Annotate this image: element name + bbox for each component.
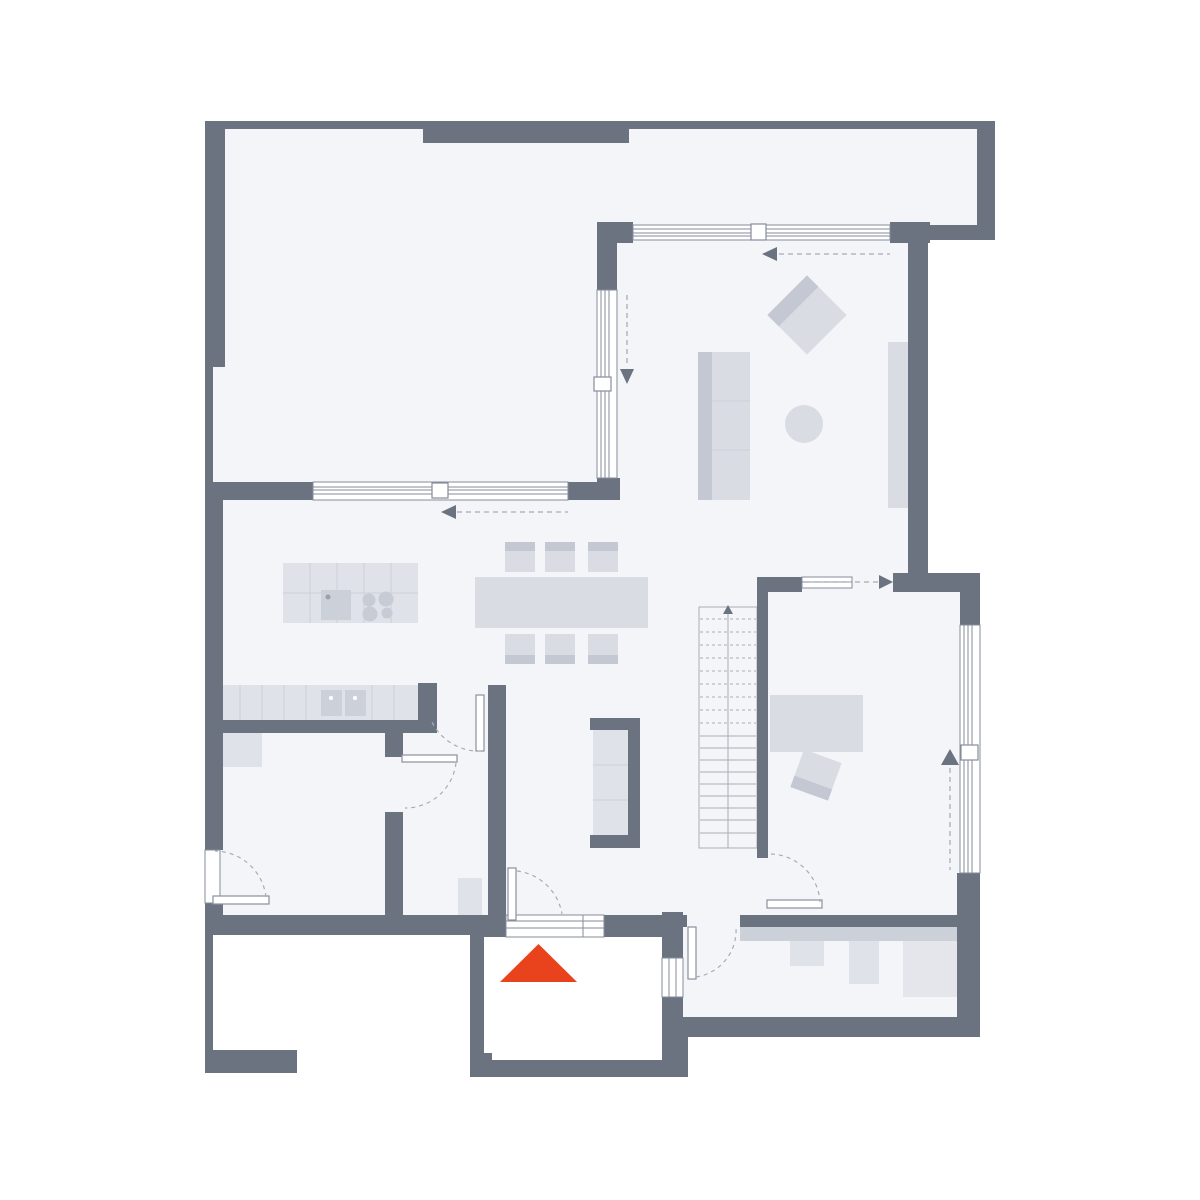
- wall: [488, 685, 506, 915]
- window-living-west: [594, 290, 617, 478]
- shoe-cabinet: [458, 878, 482, 916]
- dining-chair: [545, 542, 575, 572]
- dining-chair: [505, 542, 535, 572]
- window-bedroom-north: [802, 577, 852, 588]
- storage-door-leaf: [476, 695, 484, 751]
- wall: [205, 121, 225, 367]
- kitchen-counter: [218, 685, 418, 720]
- wall: [484, 915, 506, 937]
- bedroom-door-leaf: [767, 900, 822, 908]
- wall: [682, 1017, 980, 1037]
- window-symbol: [594, 377, 611, 391]
- wall: [385, 733, 403, 757]
- dining-chair: [545, 634, 575, 664]
- dining-chair: [505, 634, 535, 664]
- island-faucet: [326, 595, 331, 600]
- wall: [205, 500, 223, 850]
- window-living-north: [633, 224, 890, 240]
- wall: [205, 720, 437, 733]
- floor-entrance-porch: [484, 937, 662, 1060]
- utility-door-leaf: [688, 927, 696, 979]
- front-door-threshold: [506, 915, 604, 937]
- bath-cabinet: [222, 733, 262, 767]
- dining-chair: [588, 634, 618, 664]
- dining-chair: [588, 542, 618, 572]
- wall: [205, 482, 313, 500]
- wall: [662, 912, 683, 958]
- side-door-opening: [205, 850, 220, 903]
- wall: [890, 222, 930, 243]
- window-porch-side: [662, 958, 683, 997]
- wall: [418, 683, 437, 733]
- wall: [908, 225, 928, 577]
- wall: [205, 903, 223, 915]
- sofa: [698, 352, 750, 500]
- wall: [597, 222, 617, 290]
- wall: [597, 478, 620, 500]
- kitchen-island: [283, 563, 418, 623]
- wall: [677, 1037, 688, 1060]
- wall: [604, 915, 662, 937]
- wall: [470, 1060, 688, 1077]
- window-bedroom-east: [960, 625, 980, 873]
- appliance: [790, 941, 824, 966]
- wall: [682, 915, 687, 927]
- wall: [205, 915, 470, 935]
- floor-plan: [0, 0, 1200, 1200]
- island-sink: [321, 590, 351, 620]
- floor-garage: [212, 128, 597, 482]
- wall: [470, 915, 484, 1077]
- window-garage-south: [313, 482, 568, 500]
- sideboard: [888, 342, 910, 508]
- appliance: [849, 941, 879, 984]
- hall-wardrobe: [590, 718, 640, 848]
- floor-top-strip: [597, 128, 977, 225]
- dining-table: [475, 577, 648, 628]
- appliance: [903, 941, 957, 997]
- wall-carport-corner: [205, 1050, 297, 1073]
- bathroom-door-leaf: [402, 755, 457, 762]
- front-door-leaf: [508, 868, 516, 920]
- desk-bed: [770, 695, 863, 752]
- round-side-table: [785, 405, 823, 443]
- window-symbol: [961, 745, 978, 760]
- wall: [423, 121, 629, 143]
- side-door-leaf: [213, 896, 269, 904]
- wall: [385, 812, 403, 935]
- wall: [893, 573, 980, 592]
- wall: [740, 915, 960, 927]
- window-symbol: [432, 483, 448, 498]
- wall: [957, 873, 980, 1037]
- wall: [977, 121, 995, 237]
- wall: [205, 367, 213, 482]
- wall: [757, 577, 768, 858]
- window-symbol: [751, 224, 766, 240]
- porch-post: [481, 1053, 492, 1063]
